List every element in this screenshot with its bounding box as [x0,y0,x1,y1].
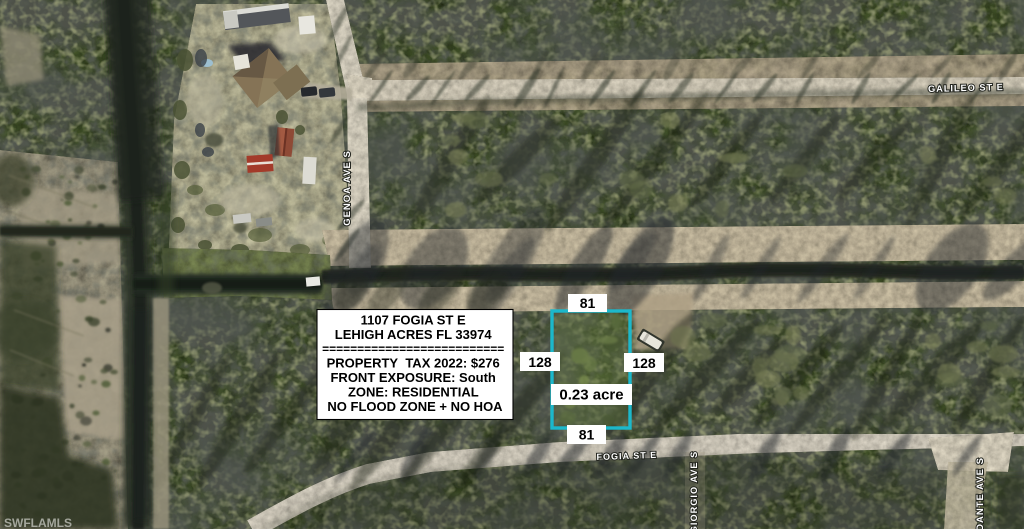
svg-text:FOGIA ST E: FOGIA ST E [596,450,657,462]
svg-text:GIORGIO AVE S: GIORGIO AVE S [689,451,699,529]
svg-text:SWFLAMLS: SWFLAMLS [4,516,72,529]
svg-text:81: 81 [580,295,596,311]
svg-text:GALILEO ST E: GALILEO ST E [928,82,1004,94]
svg-text:DANTE AVE S: DANTE AVE S [975,457,986,529]
svg-text:0.23 acre: 0.23 acre [559,387,623,404]
svg-text:128: 128 [528,354,552,370]
svg-text:1107 FOGIA ST E LEHIGH ACRES F: 1107 FOGIA ST E LEHIGH ACRES FL 33974 ==… [322,313,508,415]
svg-text:128: 128 [632,355,656,371]
svg-text:GENOA AVE S: GENOA AVE S [342,150,353,226]
svg-text:81: 81 [579,427,595,443]
